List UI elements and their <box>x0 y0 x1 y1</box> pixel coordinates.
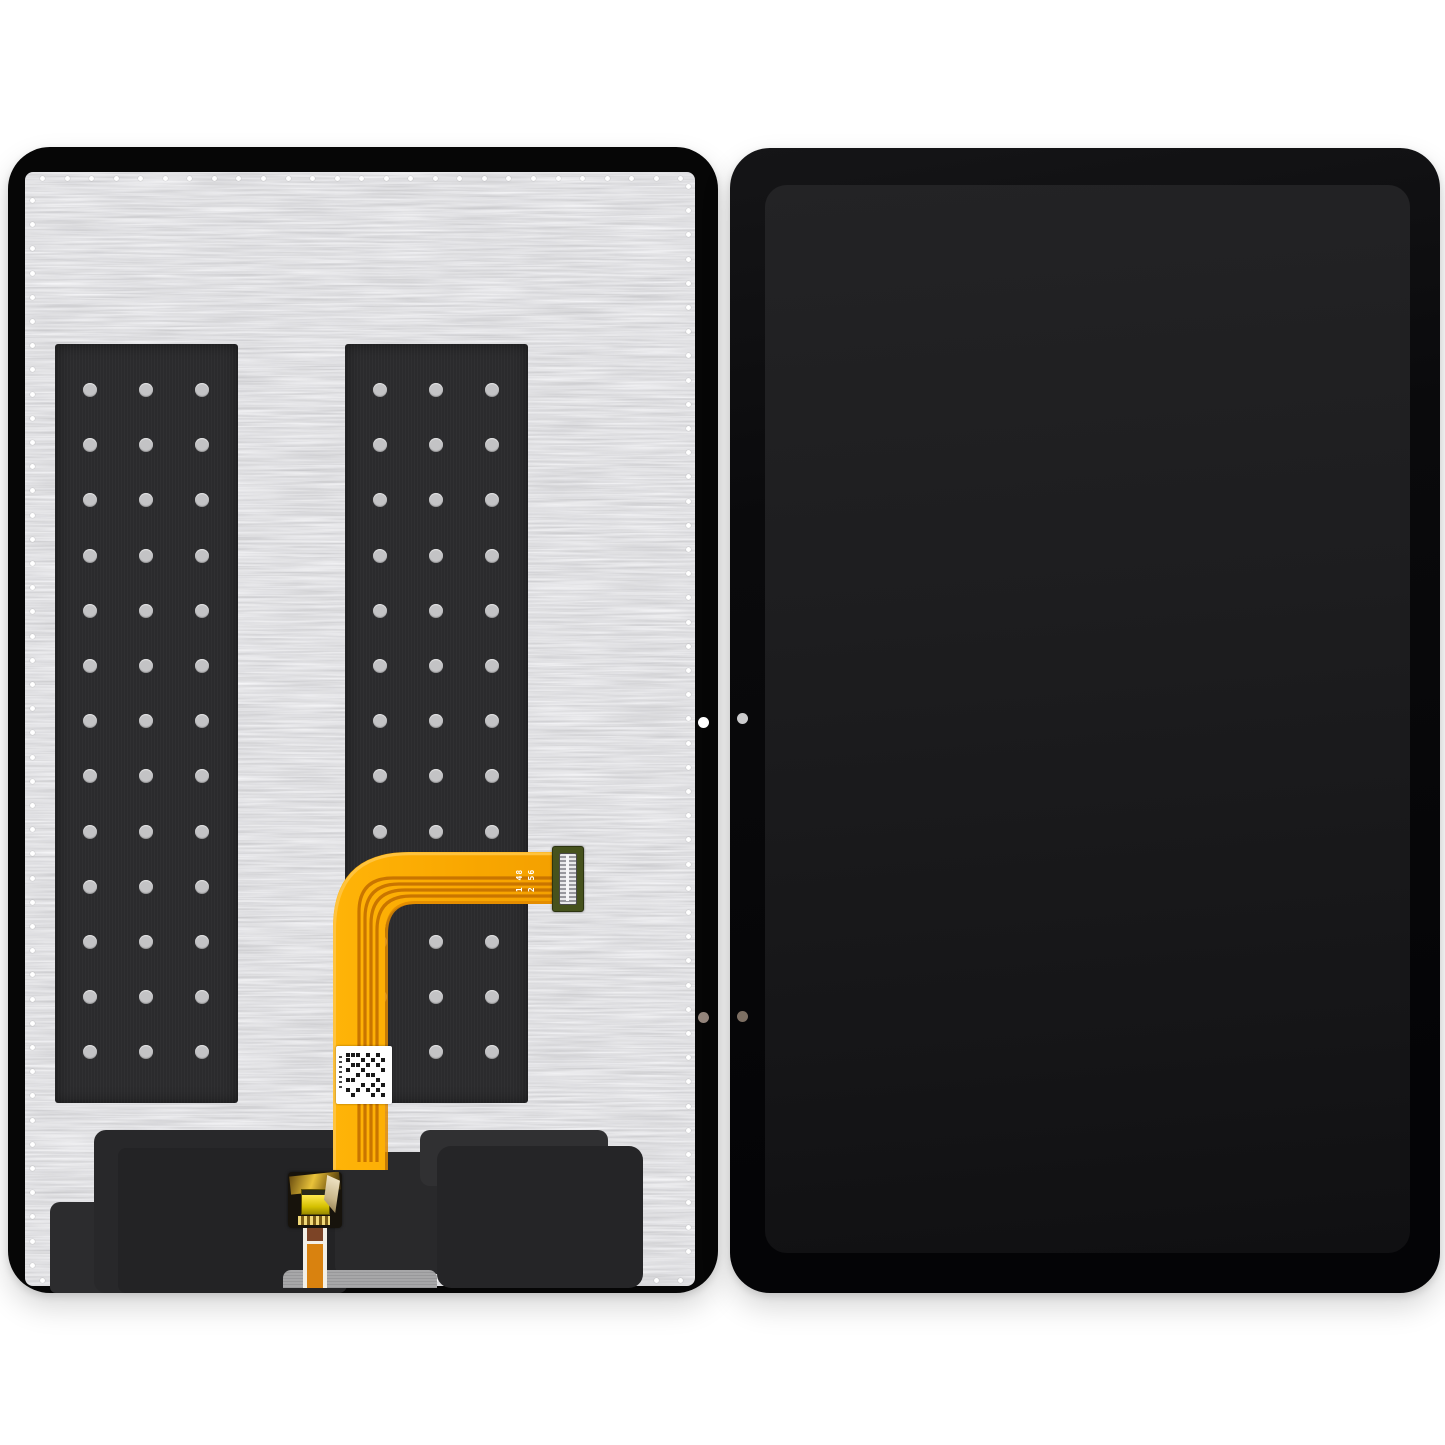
strip-hole <box>485 769 499 783</box>
strip-hole <box>195 935 209 949</box>
display-panel <box>765 185 1410 1253</box>
strip-hole <box>373 825 387 839</box>
side-hole-top <box>698 717 709 728</box>
strip-hole <box>429 549 443 563</box>
strip-hole <box>139 880 153 894</box>
flex-marking-1: 1 48 <box>515 869 524 892</box>
strip-hole <box>83 438 97 452</box>
side-hole-bottom <box>737 1011 748 1022</box>
cable-connector <box>552 846 584 912</box>
board-connector <box>288 1172 342 1228</box>
side-hole-bottom <box>698 1012 709 1023</box>
strip-hole <box>195 493 209 507</box>
strip-hole <box>139 825 153 839</box>
adhesive-strip-left <box>55 344 238 1103</box>
strip-hole <box>485 659 499 673</box>
strip-hole <box>485 549 499 563</box>
strip-hole <box>195 438 209 452</box>
strip-hole <box>485 825 499 839</box>
strip-hole <box>139 493 153 507</box>
flex-cable-shade <box>387 903 582 1171</box>
strip-hole <box>195 383 209 397</box>
board-connector-pins <box>298 1216 330 1225</box>
qr-label <box>336 1046 392 1104</box>
strip-hole <box>139 438 153 452</box>
strip-hole <box>373 659 387 673</box>
side-hole-top <box>737 713 748 724</box>
flex-marking-2: 2 56 <box>527 869 536 892</box>
strip-hole <box>195 659 209 673</box>
strip-hole <box>83 604 97 618</box>
flex-trace <box>371 890 560 1162</box>
strip-hole <box>195 990 209 1004</box>
strip-hole <box>195 1045 209 1059</box>
bottom-ribbon-stripes <box>307 1228 323 1288</box>
strip-hole <box>83 1045 97 1059</box>
strip-hole <box>195 769 209 783</box>
product-photo: 1 48 2 56 <box>0 0 1445 1445</box>
strip-hole <box>373 714 387 728</box>
strip-hole <box>195 825 209 839</box>
strip-hole <box>485 383 499 397</box>
strip-hole <box>83 549 97 563</box>
strip-hole <box>373 549 387 563</box>
strip-hole <box>139 549 153 563</box>
qr-label-text <box>339 1056 342 1088</box>
strip-hole <box>83 493 97 507</box>
back-assembly: 1 48 2 56 <box>8 147 718 1293</box>
strip-hole <box>139 990 153 1004</box>
strip-hole <box>485 604 499 618</box>
strip-hole <box>139 714 153 728</box>
strip-hole <box>485 714 499 728</box>
strip-hole <box>373 383 387 397</box>
strip-hole <box>429 438 443 452</box>
strip-hole <box>429 714 443 728</box>
front-assembly <box>730 148 1440 1293</box>
strip-hole <box>485 493 499 507</box>
strip-hole <box>195 604 209 618</box>
flex-trace <box>365 884 560 1162</box>
strip-hole <box>83 714 97 728</box>
strip-hole <box>429 493 443 507</box>
flex-trace <box>377 896 560 1162</box>
strip-hole <box>139 769 153 783</box>
qr-code <box>346 1053 350 1057</box>
strip-hole <box>195 549 209 563</box>
strip-hole <box>373 493 387 507</box>
strip-hole <box>83 383 97 397</box>
strip-hole <box>429 604 443 618</box>
strip-hole <box>139 659 153 673</box>
lcd-flex-cable <box>310 840 590 1170</box>
strip-hole <box>429 769 443 783</box>
strip-hole <box>83 935 97 949</box>
strip-hole <box>139 1045 153 1059</box>
strip-hole <box>195 714 209 728</box>
strip-hole <box>139 604 153 618</box>
strip-hole <box>83 825 97 839</box>
strip-hole <box>83 880 97 894</box>
strip-hole <box>429 383 443 397</box>
strip-hole <box>373 769 387 783</box>
strip-hole <box>373 604 387 618</box>
strip-hole <box>373 438 387 452</box>
strip-hole <box>83 769 97 783</box>
strip-hole <box>83 659 97 673</box>
strip-hole <box>83 990 97 1004</box>
strip-hole <box>139 383 153 397</box>
strip-hole <box>429 659 443 673</box>
bottom-ribbon <box>303 1228 327 1288</box>
strip-hole <box>485 438 499 452</box>
strip-hole <box>195 880 209 894</box>
cable-connector-pins <box>559 853 577 905</box>
strip-hole <box>139 935 153 949</box>
strip-hole <box>429 825 443 839</box>
